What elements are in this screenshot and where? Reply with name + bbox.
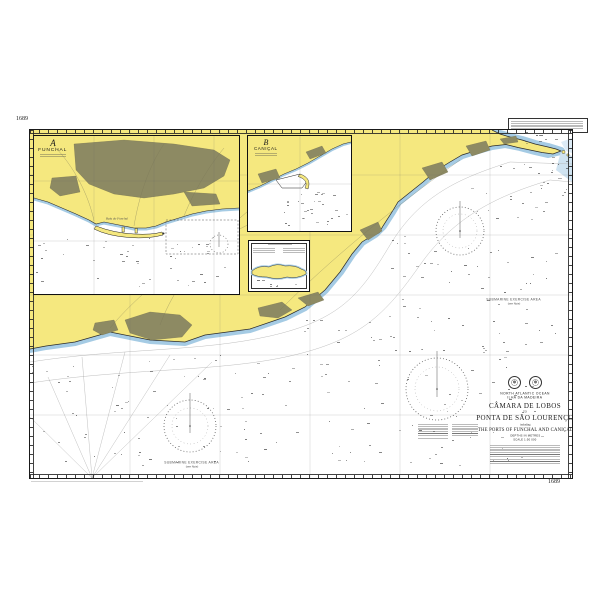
pier (122, 227, 124, 232)
submarine-area-label-south: SUBMARINE EXERCISE AREA (see Note) (142, 460, 242, 470)
crest-icon (508, 376, 521, 389)
bay-name-label: Baía do Funchal (82, 216, 152, 222)
chart-title-line2: PONTA DE SÃO LOURENÇO (476, 414, 573, 422)
inset-a-compass (210, 232, 228, 253)
title-notes-paragraph (490, 445, 560, 465)
see-note-text: (see Note) (508, 303, 521, 306)
inset-a-funchal: A FUNCHAL Baía do Funchal (33, 135, 240, 295)
compass-rose-east (436, 201, 484, 255)
chart-subtitle: THE PORTS OF FUNCHAL AND CANIÇAL (477, 427, 572, 432)
breakwater-head-light (163, 233, 165, 235)
chart-number-top-left: 1689 (16, 116, 28, 122)
title-including: including (520, 423, 530, 426)
depths-note: DEPTHS IN METRES (510, 434, 540, 437)
inset-a-letter: A (50, 138, 56, 148)
inset-a-drawing (34, 136, 239, 294)
crest-icon (529, 376, 542, 389)
anchorage-limit (166, 220, 238, 254)
compass-rose-west (164, 393, 216, 452)
inset-b-scale-note (255, 153, 277, 156)
chart-title-joiner: TO (523, 410, 527, 413)
inset-b-letter: B (264, 138, 269, 147)
sea-area-label: NORTH ATLANTIC OCEAN (500, 392, 550, 395)
crest-row (508, 376, 542, 389)
inset-b-canical: B CANIÇAL (247, 135, 352, 232)
scale-note: SCALE 1:50 000 (513, 438, 536, 441)
pier (135, 229, 137, 234)
inset-a-title: A FUNCHAL (36, 138, 70, 158)
copyright-line (31, 481, 143, 483)
inset-b-title: B CANIÇAL (251, 138, 281, 156)
chart-title-line1: CÂMARA DE LOBOS (489, 402, 561, 410)
inset-continuation (248, 240, 310, 292)
submarine-area-text: SUBMARINE EXERCISE AREA (487, 298, 542, 301)
inset-c-drawing (249, 241, 309, 291)
inset-b-name: CANIÇAL (254, 147, 278, 152)
see-note-text: (see Note) (186, 466, 199, 469)
submarine-area-text: SUBMARINE EXERCISE AREA (165, 461, 220, 464)
tidal-table (452, 424, 478, 437)
region-label: ILHA DA MADEIRA (507, 396, 542, 399)
tidal-table (418, 424, 448, 440)
main-chart: SUBMARINE EXERCISE AREA (see Note) SUBMA… (29, 129, 573, 479)
submarine-area-label-east: SUBMARINE EXERCISE AREA (see Note) (464, 297, 564, 307)
compass-rose-south (406, 351, 468, 420)
inset-a-name: FUNCHAL (39, 148, 68, 153)
inset-a-scale-note (40, 154, 66, 158)
chart-number-bottom-right: 1689 (548, 479, 560, 485)
chart-sheet-page: { "chart": { "number": "1689", "title_bl… (0, 0, 600, 600)
title-block: NORTH ATLANTIC OCEAN ILHA DA MADEIRA CÂM… (476, 376, 574, 465)
